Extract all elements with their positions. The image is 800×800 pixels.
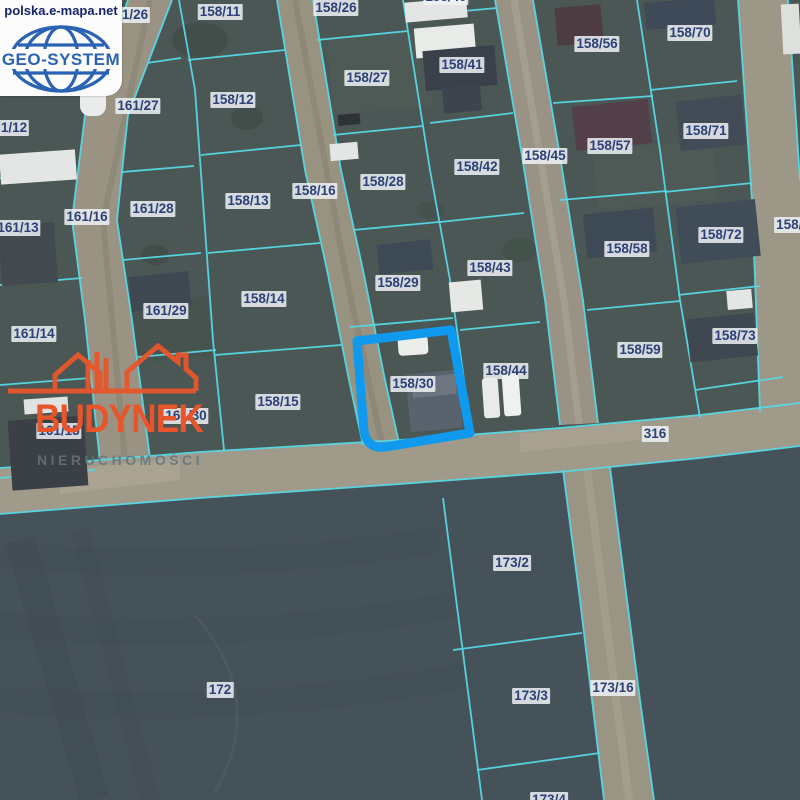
parcel-label: 158/73 [712, 328, 757, 344]
parcel-label: 158/41 [439, 57, 484, 73]
parcel-label-selected: 158/30 [390, 376, 435, 392]
agency-watermark-subtitle: NIERUCHOMOŚCI [37, 452, 203, 468]
parcel-label: 158/58 [604, 241, 649, 257]
geo-system-globe-icon: GEO-SYSTEM [0, 19, 122, 97]
parcel-label: 316 [642, 426, 669, 442]
provider-logo: polska.e-mapa.net GEO-SYSTEM [0, 0, 122, 96]
parcel-label: 161/27 [115, 98, 160, 114]
parcel-label: 158/57 [587, 138, 632, 154]
parcel-label: 158/56 [574, 36, 619, 52]
parcel-label: 161/28 [130, 201, 175, 217]
parcel-label: 158/59 [617, 342, 662, 358]
parcel-label: 158/72 [698, 227, 743, 243]
parcel-label: 158/13 [225, 193, 270, 209]
parcel-label: 161/16 [64, 209, 109, 225]
parcel-label: 158/44 [483, 363, 528, 379]
parcel-label: 158/71 [683, 123, 728, 139]
parcel-label: 173/16 [590, 680, 635, 696]
parcel-label: 158/15 [255, 394, 300, 410]
parcel-label: 173/3 [512, 688, 550, 704]
parcel-label: 158/26 [313, 0, 358, 16]
parcel-label: 158/70 [667, 25, 712, 41]
parcel-label: 158/16 [292, 183, 337, 199]
parcel-label: 158/40 [423, 0, 468, 5]
parcel-label: 158/28 [360, 174, 405, 190]
parcel-label: 158/29 [375, 275, 420, 291]
parcel-label: 158/27 [344, 70, 389, 86]
parcel-label: 161/29 [143, 303, 188, 319]
parcel-label: 158/45 [522, 148, 567, 164]
parcel-label: 161/13 [0, 220, 41, 236]
provider-url-text: polska.e-mapa.net [0, 0, 122, 19]
parcel-label: 158/12 [210, 92, 255, 108]
parcel-label: 158/14 [241, 291, 286, 307]
parcel-label: 1/12 [0, 120, 29, 136]
parcel-label: 172 [207, 682, 234, 698]
parcel-label: 173/4 [530, 792, 568, 800]
parcel-label: 158/11 [198, 4, 243, 20]
parcel-label: 158/7 [774, 217, 800, 233]
parcel-label: 173/2 [493, 555, 531, 571]
house-logo-icon [0, 328, 260, 408]
parcel-label: 158/43 [467, 260, 512, 276]
map-canvas[interactable]: 1/26158/11158/26158/40158/56158/70158/41… [0, 0, 800, 800]
parcel-label: 158/42 [454, 159, 499, 175]
parcel-label: 1/26 [120, 7, 150, 23]
agency-watermark-title: BUDYNEK [35, 398, 203, 440]
geo-system-text: GEO-SYSTEM [2, 50, 120, 69]
